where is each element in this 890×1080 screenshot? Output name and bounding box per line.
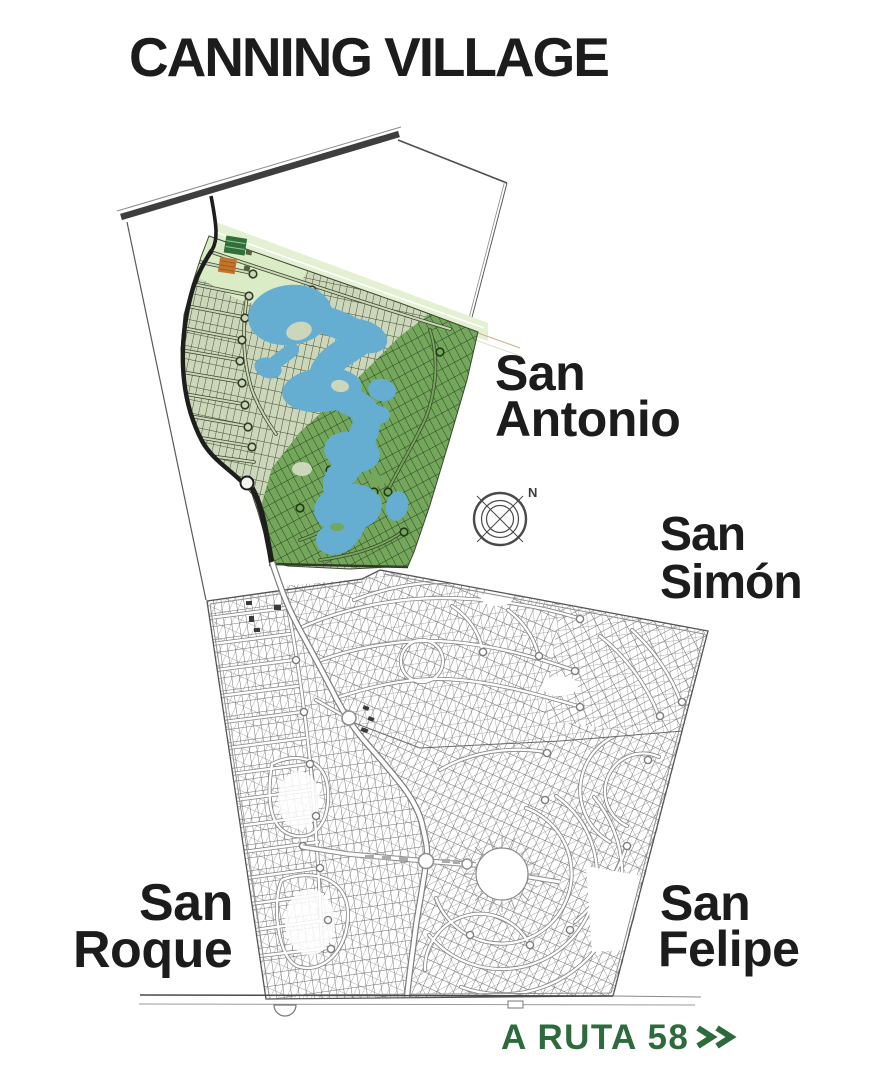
svg-text:N: N (528, 485, 537, 500)
